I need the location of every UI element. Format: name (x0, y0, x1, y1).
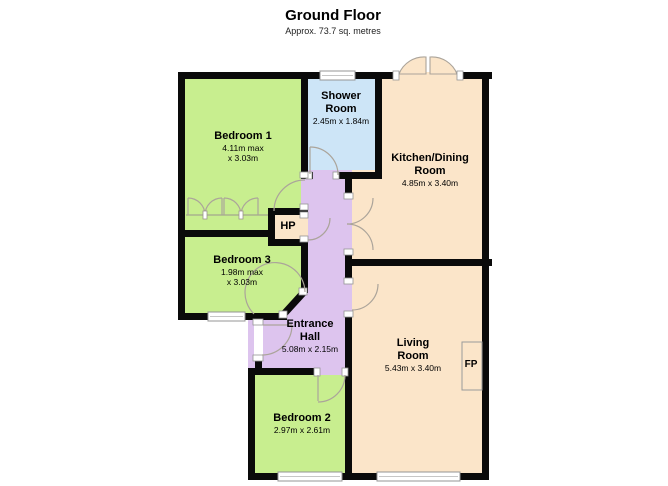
bedroom3-window (208, 312, 245, 321)
french-door-right-leaf (430, 57, 457, 74)
floor-plan-page: Ground Floor Approx. 73.7 sq. metres (0, 0, 668, 486)
french-door-left-leaf (399, 57, 426, 74)
living-room-label: Living Room 5.43m x 3.40m (385, 337, 441, 374)
floor-plan-drawing (0, 0, 668, 486)
bedroom3-label: Bedroom 3 1.98m max x 3.03m (213, 254, 270, 288)
bedroom2-window (278, 472, 342, 481)
bedroom2-label: Bedroom 2 2.97m x 2.61m (273, 412, 330, 435)
hp-label: HP (280, 220, 295, 233)
shower-room-label: Shower Room 2.45m x 1.84m (313, 90, 369, 127)
entrance-hall-label: Entrance Hall 5.08m x 2.15m (282, 318, 338, 355)
kitchen-dining-label: Kitchen/Dining Room 4.85m x 3.40m (391, 152, 469, 189)
shower-window (320, 71, 355, 80)
bedroom1-label: Bedroom 1 4.11m max x 3.03m (214, 130, 271, 164)
living-room-window (377, 472, 460, 481)
fireplace-label: FP (465, 359, 478, 371)
front-door-opening (254, 324, 263, 356)
